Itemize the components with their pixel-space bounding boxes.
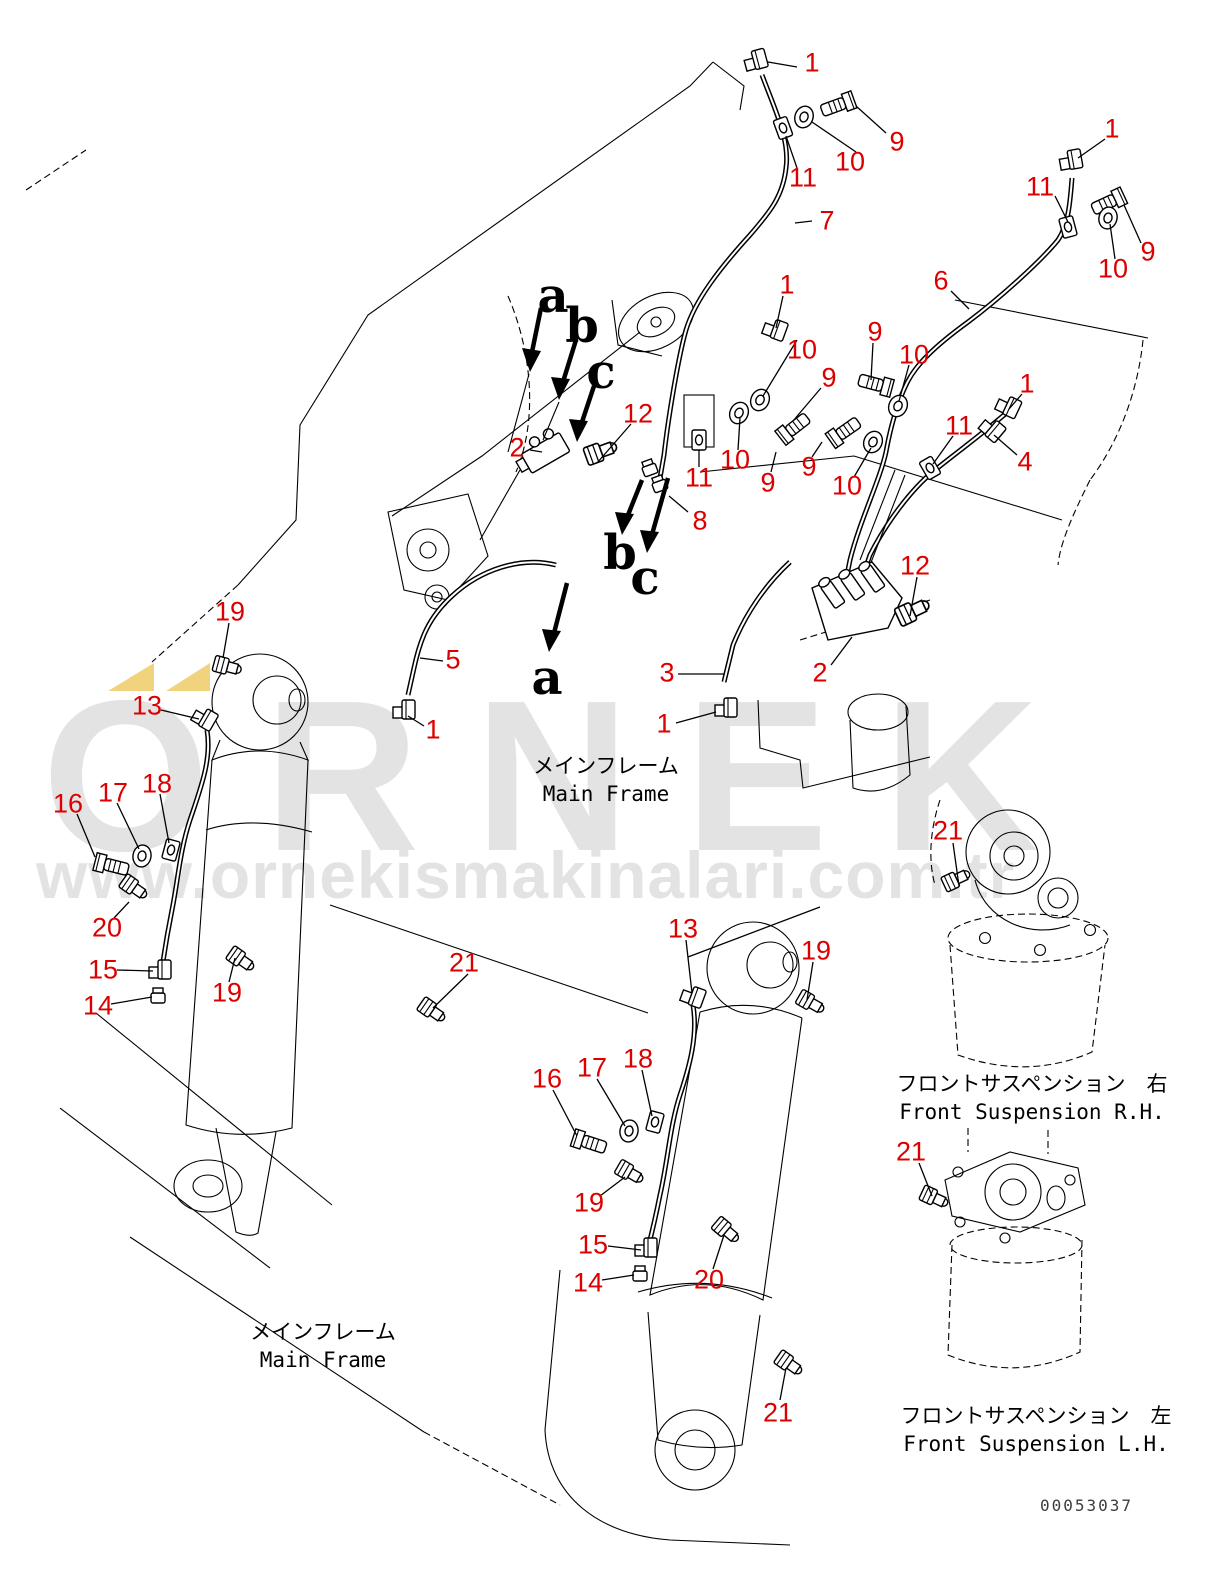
callout-9: 9 bbox=[801, 454, 816, 481]
callout-16: 16 bbox=[532, 1066, 562, 1093]
callout-11: 11 bbox=[789, 165, 817, 192]
view-letter-a: a bbox=[531, 654, 562, 702]
callout-9: 9 bbox=[867, 319, 882, 346]
callout-18: 18 bbox=[142, 771, 172, 798]
suspension-lh-label: フロントサスペンション 左 Front Suspension L.H. bbox=[900, 1402, 1171, 1458]
callout-1: 1 bbox=[1104, 116, 1119, 143]
callout-9: 9 bbox=[1140, 239, 1155, 266]
callout-21: 21 bbox=[933, 818, 963, 845]
main-frame-label-lower: メインフレーム Main Frame bbox=[250, 1318, 396, 1374]
callout-9: 9 bbox=[889, 129, 904, 156]
callout-1: 1 bbox=[656, 711, 671, 738]
callout-10: 10 bbox=[899, 342, 929, 369]
callout-11: 11 bbox=[1026, 174, 1054, 201]
callout-21: 21 bbox=[896, 1139, 926, 1166]
callout-17: 17 bbox=[577, 1055, 607, 1082]
callout-2: 2 bbox=[509, 435, 524, 462]
callout-3: 3 bbox=[659, 660, 674, 687]
suspension-rh-en: Front Suspension R.H. bbox=[896, 1098, 1167, 1126]
callout-19: 19 bbox=[212, 980, 242, 1007]
callout-18: 18 bbox=[623, 1046, 653, 1073]
suspension-lh-en: Front Suspension L.H. bbox=[900, 1430, 1171, 1458]
callout-21: 21 bbox=[763, 1400, 793, 1427]
view-letter-b: b bbox=[565, 302, 599, 350]
callout-9: 9 bbox=[821, 365, 836, 392]
suspension-rh-jp: フロントサスペンション 右 bbox=[896, 1070, 1167, 1098]
callout-7: 7 bbox=[819, 208, 834, 235]
callout-12: 12 bbox=[900, 553, 930, 580]
main-frame-upper-jp: メインフレーム bbox=[533, 752, 679, 780]
callout-8: 8 bbox=[692, 508, 707, 535]
callout-1: 1 bbox=[804, 50, 819, 77]
callout-10: 10 bbox=[835, 149, 865, 176]
callout-5: 5 bbox=[445, 647, 460, 674]
callout-21: 21 bbox=[449, 950, 479, 977]
suspension-rh-label: フロントサスペンション 右 Front Suspension R.H. bbox=[896, 1070, 1167, 1126]
callout-10: 10 bbox=[832, 473, 862, 500]
callout-10: 10 bbox=[787, 337, 817, 364]
callout-19: 19 bbox=[574, 1190, 604, 1217]
main-frame-label-upper: メインフレーム Main Frame bbox=[533, 752, 679, 808]
main-frame-lower-jp: メインフレーム bbox=[250, 1318, 396, 1346]
parts-diagram-page: ORNEK www.ornekismakinalari.com.tr bbox=[0, 0, 1222, 1596]
callout-14: 14 bbox=[573, 1270, 603, 1297]
view-letter-c: c bbox=[586, 348, 615, 396]
callout-20: 20 bbox=[694, 1267, 724, 1294]
callout-13: 13 bbox=[668, 916, 698, 943]
suspension-lh-jp: フロントサスペンション 左 bbox=[900, 1402, 1171, 1430]
callout-9: 9 bbox=[760, 470, 775, 497]
callout-16: 16 bbox=[53, 791, 83, 818]
callout-10: 10 bbox=[1098, 256, 1128, 283]
callout-17: 17 bbox=[98, 780, 128, 807]
view-letter-a: a bbox=[537, 272, 568, 320]
callout-11: 11 bbox=[685, 465, 713, 492]
callout-6: 6 bbox=[933, 268, 948, 295]
callout-4: 4 bbox=[1017, 449, 1032, 476]
callout-12: 12 bbox=[623, 401, 653, 428]
callout-11: 11 bbox=[945, 413, 973, 440]
callout-20: 20 bbox=[92, 915, 122, 942]
callout-19: 19 bbox=[801, 938, 831, 965]
callout-15: 15 bbox=[88, 957, 118, 984]
callout-10: 10 bbox=[720, 447, 750, 474]
callout-2: 2 bbox=[812, 660, 827, 687]
callout-14: 14 bbox=[83, 993, 113, 1020]
callout-15: 15 bbox=[578, 1232, 608, 1259]
callout-19: 19 bbox=[215, 599, 245, 626]
drawing-number: 00053037 bbox=[1040, 1496, 1133, 1515]
callout-13: 13 bbox=[132, 693, 162, 720]
main-frame-lower-en: Main Frame bbox=[250, 1346, 396, 1374]
callout-1: 1 bbox=[779, 272, 794, 299]
view-letter-c: c bbox=[630, 554, 659, 602]
main-frame-upper-en: Main Frame bbox=[533, 780, 679, 808]
callout-1: 1 bbox=[425, 717, 440, 744]
callout-1: 1 bbox=[1019, 371, 1034, 398]
